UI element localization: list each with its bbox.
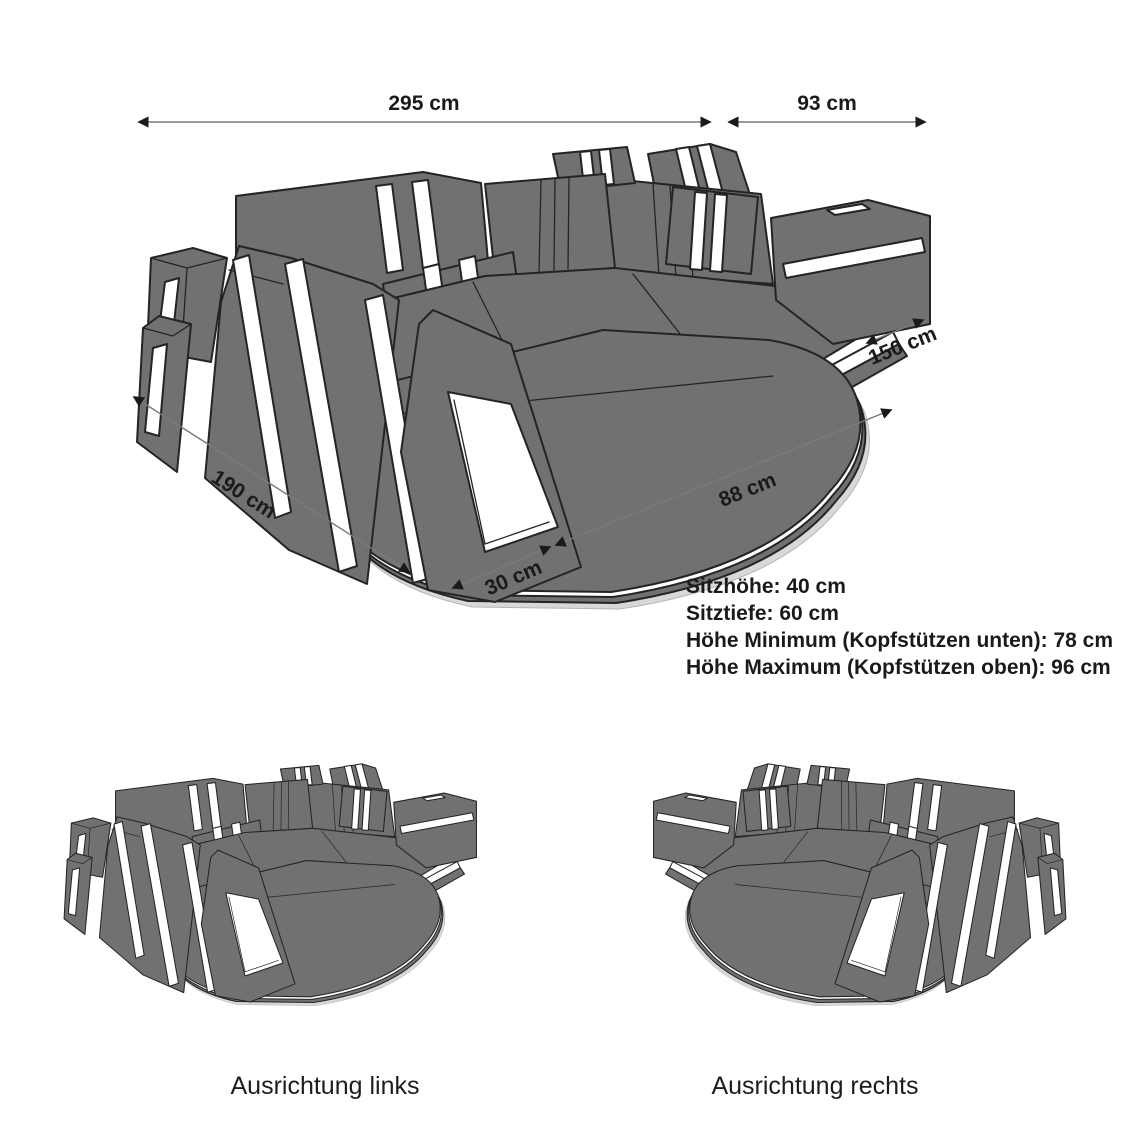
sofa-dimension-diagram: 295 cm 93 cm 150 cm 190 cm 30 cm 88 cm S… bbox=[0, 0, 1134, 1134]
dimension-label-corner-width: 93 cm bbox=[797, 92, 857, 115]
dimension-label-total-width: 295 cm bbox=[388, 92, 459, 115]
spec-line-height-min: Höhe Minimum (Kopfstützen unten): 78 cm bbox=[686, 629, 1113, 652]
spec-line-height-max: Höhe Maximum (Kopfstützen oben): 96 cm bbox=[686, 656, 1111, 679]
spec-line-seat-height: Sitzhöhe: 40 cm bbox=[686, 575, 846, 598]
variant-label-left: Ausrichtung links bbox=[231, 1072, 420, 1100]
sofa-illustration-main bbox=[137, 144, 930, 609]
sofa-variant-left bbox=[64, 764, 476, 1006]
spec-line-seat-depth: Sitztiefe: 60 cm bbox=[686, 602, 839, 625]
sofa-variant-right bbox=[654, 764, 1066, 1006]
variant-label-right: Ausrichtung rechts bbox=[711, 1072, 918, 1100]
spec-text-block: Sitzhöhe: 40 cm Sitztiefe: 60 cm Höhe Mi… bbox=[686, 575, 1113, 679]
